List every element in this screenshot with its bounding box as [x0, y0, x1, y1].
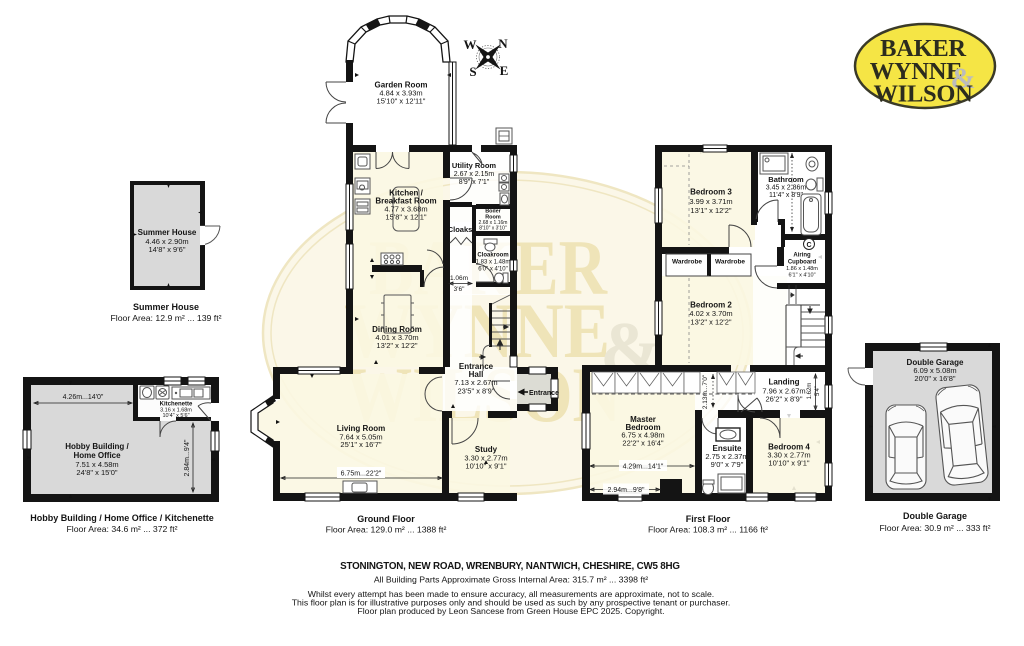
svg-text:Double Garage: Double Garage — [903, 511, 967, 521]
svg-text:9'0" x 7'9": 9'0" x 7'9" — [711, 460, 744, 469]
svg-text:13'2" x 12'2": 13'2" x 12'2" — [690, 318, 731, 327]
svg-text:26'2" x 8'9": 26'2" x 8'9" — [766, 395, 803, 404]
svg-text:11'4" x 8'9": 11'4" x 8'9" — [769, 192, 803, 199]
svg-text:Cupboard: Cupboard — [788, 260, 817, 266]
svg-text:1.06m: 1.06m — [450, 275, 468, 282]
svg-text:Landing: Landing — [768, 378, 799, 387]
svg-text:Bedroom 3: Bedroom 3 — [690, 188, 732, 197]
svg-text:Wardrobe: Wardrobe — [672, 259, 702, 266]
svg-text:Floor Area: 129.0 m² ... 1388: Floor Area: 129.0 m² ... 1388 ft² — [326, 525, 447, 535]
svg-text:Wardrobe: Wardrobe — [715, 259, 745, 266]
svg-text:WILSON: WILSON — [874, 81, 974, 108]
svg-text:C: C — [806, 242, 811, 249]
svg-text:Cloaks: Cloaks — [448, 225, 473, 234]
svg-text:Floor Area: 34.6 m² ... 372 ft: Floor Area: 34.6 m² ... 372 ft² — [66, 524, 177, 534]
svg-text:Utility Room: Utility Room — [452, 161, 496, 170]
svg-text:10'4" x 5'6": 10'4" x 5'6" — [162, 413, 189, 419]
svg-text:3'6": 3'6" — [454, 286, 465, 293]
svg-text:3.45 x 2.86m: 3.45 x 2.86m — [766, 185, 807, 192]
svg-text:4.29m...14'1": 4.29m...14'1" — [623, 464, 664, 471]
svg-text:5'4": 5'4" — [815, 386, 821, 396]
svg-text:Bathroom: Bathroom — [768, 175, 804, 184]
svg-text:Ground Floor: Ground Floor — [357, 514, 415, 524]
svg-text:6'1" x 4'10": 6'1" x 4'10" — [788, 273, 815, 279]
svg-text:23'5" x 8'9": 23'5" x 8'9" — [458, 387, 495, 396]
svg-text:Floor Area: 12.9 m² ... 139 ft: Floor Area: 12.9 m² ... 139 ft² — [110, 313, 221, 323]
svg-text:E: E — [500, 63, 509, 78]
svg-text:13'2" x 12'2": 13'2" x 12'2" — [376, 341, 417, 350]
svg-text:Airing: Airing — [793, 253, 811, 259]
svg-text:13'1" x 12'2": 13'1" x 12'2" — [690, 206, 731, 215]
svg-text:2.13m...7'0": 2.13m...7'0" — [702, 374, 709, 409]
svg-text:14'8" x 9'6": 14'8" x 9'6" — [149, 245, 186, 254]
svg-text:6.75m...22'2": 6.75m...22'2" — [341, 471, 382, 478]
svg-text:Entrance: Entrance — [529, 390, 559, 397]
svg-text:Summer House: Summer House — [138, 228, 197, 237]
svg-text:Hobby Building / Home Office /: Hobby Building / Home Office / Kitchenet… — [30, 513, 214, 523]
svg-text:8'9" x 7'1": 8'9" x 7'1" — [459, 179, 490, 186]
svg-text:All Building Parts Approximate: All Building Parts Approximate Gross Int… — [374, 575, 648, 585]
svg-text:Summer House: Summer House — [133, 302, 199, 312]
svg-text:Floor Area: 30.9 m² ... 333 ft: Floor Area: 30.9 m² ... 333 ft² — [879, 523, 990, 533]
svg-text:15'10" x 12'11": 15'10" x 12'11" — [377, 97, 426, 106]
svg-text:20'0" x 16'8": 20'0" x 16'8" — [914, 374, 955, 383]
svg-text:2.84m...9'4": 2.84m...9'4" — [184, 439, 191, 476]
svg-text:2.94m...9'8": 2.94m...9'8" — [608, 487, 645, 494]
svg-text:8'10" x 3'10": 8'10" x 3'10" — [479, 226, 507, 232]
svg-text:1.86 x 1.48m: 1.86 x 1.48m — [786, 266, 818, 272]
svg-text:6'0" x 4'10": 6'0" x 4'10" — [478, 267, 508, 273]
svg-text:1.83 x 1.48m: 1.83 x 1.48m — [476, 260, 511, 266]
svg-text:10'10" x 9'1": 10'10" x 9'1" — [768, 459, 809, 468]
svg-text:4.26m...14'0": 4.26m...14'0" — [63, 394, 104, 401]
svg-text:22'2" x 16'4": 22'2" x 16'4" — [622, 439, 663, 448]
svg-text:First Floor: First Floor — [686, 514, 731, 524]
svg-text:Cloakroom: Cloakroom — [477, 253, 508, 259]
svg-text:Floor plan produced by Leon Sa: Floor plan produced by Leon Sancese from… — [357, 606, 664, 616]
svg-text:Home Office: Home Office — [73, 451, 121, 460]
svg-text:W: W — [464, 37, 477, 52]
svg-text:24'8" x 15'0": 24'8" x 15'0" — [76, 468, 117, 477]
svg-text:Hobby Building /: Hobby Building / — [65, 442, 129, 451]
svg-text:Floor Area: 108.3 m² ... 1166: Floor Area: 108.3 m² ... 1166 ft² — [648, 525, 768, 535]
svg-text:S: S — [469, 64, 476, 79]
svg-text:STONINGTON, NEW ROAD, WRENBURY: STONINGTON, NEW ROAD, WRENBURY, NANTWICH… — [340, 561, 680, 572]
svg-text:15'8" x 12'1": 15'8" x 12'1" — [385, 213, 426, 222]
svg-text:2.67 x 2.15m: 2.67 x 2.15m — [454, 171, 495, 178]
svg-text:N: N — [498, 36, 508, 51]
svg-text:25'1" x 16'7": 25'1" x 16'7" — [340, 440, 381, 449]
svg-text:1.62m: 1.62m — [807, 383, 813, 400]
svg-text:3.99 x 3.71m: 3.99 x 3.71m — [689, 197, 732, 206]
